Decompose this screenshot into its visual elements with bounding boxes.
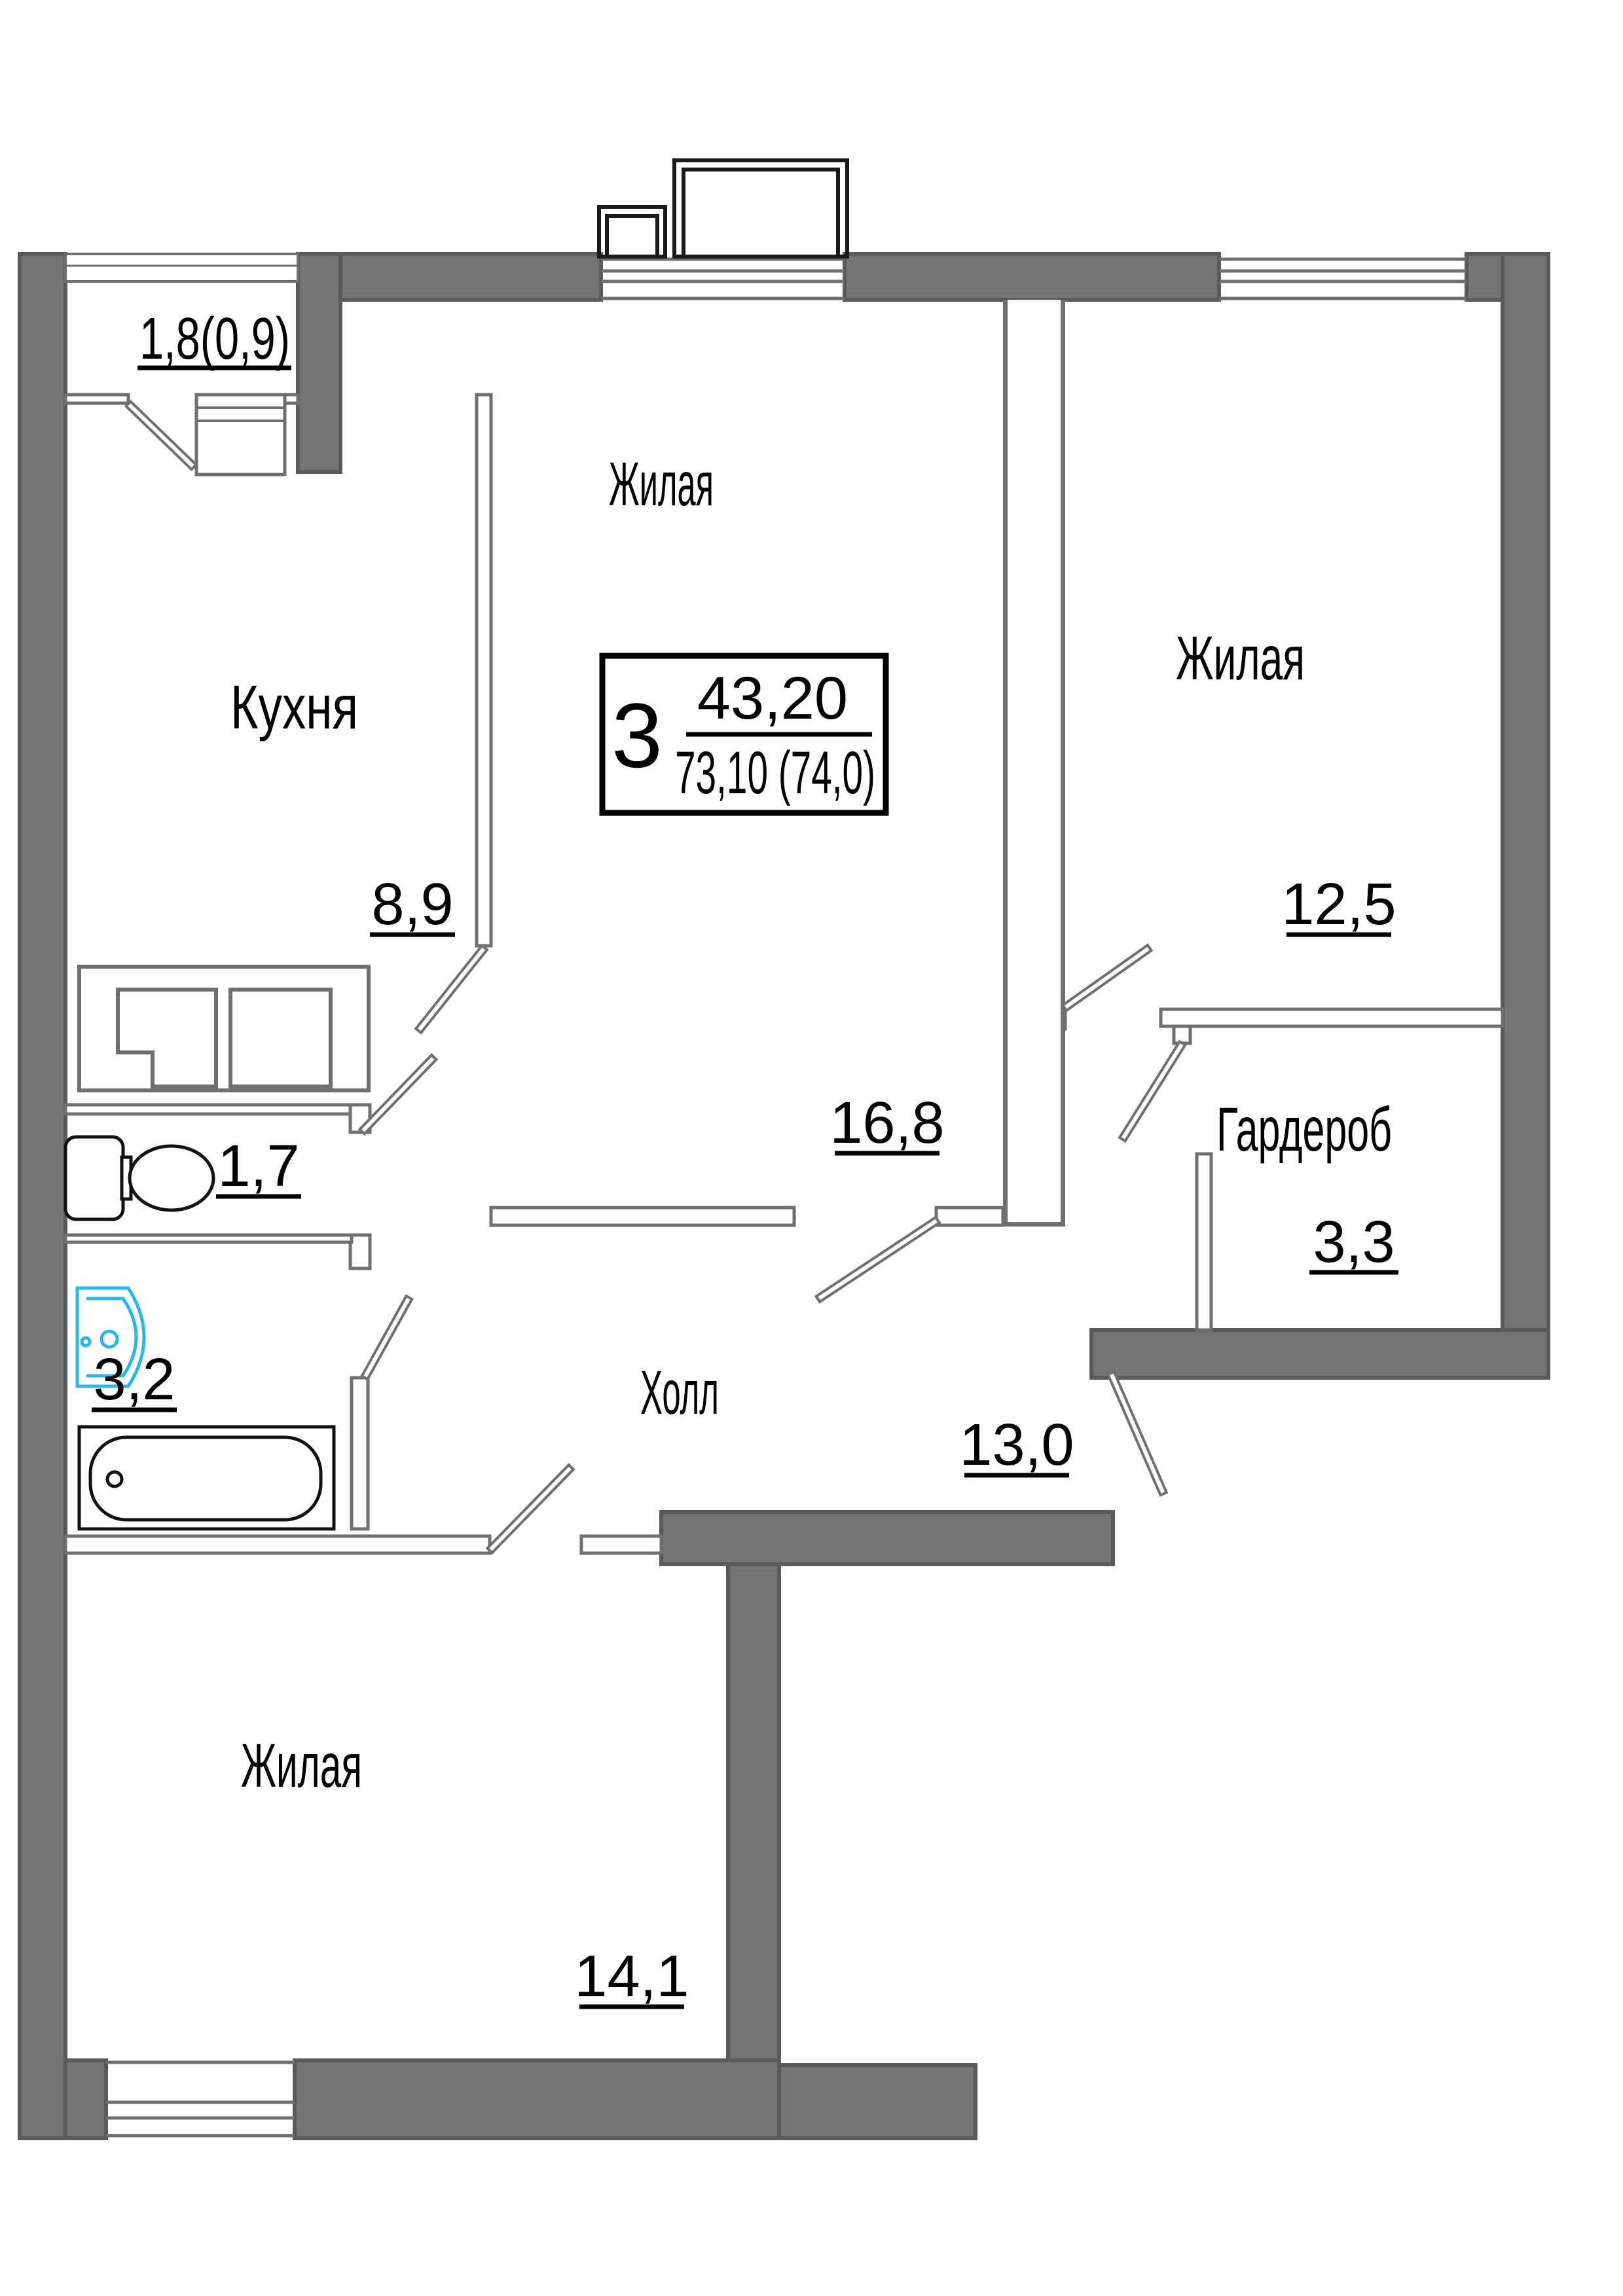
- shaft-cavity: [1008, 300, 1061, 1222]
- window-icon: [65, 254, 298, 281]
- room-label-living-top: Жилая: [609, 450, 714, 519]
- door-swing-icon: [362, 1296, 412, 1379]
- wardrobe-area: 3,3: [1313, 1210, 1395, 1275]
- total-area: 73,10 (74,0): [675, 740, 875, 806]
- balcony-glazing: [65, 254, 298, 281]
- door-swing-icon: [126, 401, 196, 469]
- jamb: [936, 1208, 1003, 1225]
- wall-left: [20, 254, 65, 2138]
- wall-bath-right: [352, 1378, 368, 1529]
- room-label-living-right: Жилая: [1176, 624, 1305, 693]
- balcony-area: 1,8(0,9): [139, 306, 290, 372]
- shaft-wall-right: [1061, 300, 1065, 1226]
- toilet-icon: [65, 1137, 213, 1219]
- window-top-right: [1219, 259, 1467, 298]
- window-bottom: [106, 2062, 295, 2136]
- door-swing-icon: [1063, 945, 1152, 1011]
- floor-plan-drawing: 1,8(0,9) Кухня 8,9 Жилая 16,8 Жилая 12,5…: [0, 0, 1623, 2296]
- bathroom-area: 3,2: [93, 1347, 175, 1412]
- living-right-area: 12,5: [1281, 872, 1396, 937]
- shaft-wall-left: [1003, 300, 1008, 1226]
- kitchen-area: 8,9: [371, 872, 453, 937]
- wall-balcony-bottom-a: [65, 395, 128, 403]
- room-label-living-bottom: Жилая: [241, 1731, 362, 1801]
- wall-midroom-bottom: [491, 1208, 794, 1225]
- wall-bottomroom-top-a: [65, 1536, 490, 1553]
- window-top-middle: [601, 259, 845, 298]
- living-bottom-area: 14,1: [574, 1944, 689, 2009]
- balcony-outline-boxes: [599, 160, 847, 257]
- wall-bottom-left-stub: [65, 2060, 106, 2138]
- wall-wc-bath-divider: [65, 1235, 352, 1242]
- door-swing-icon: [816, 1217, 939, 1302]
- shaft: [1003, 300, 1065, 1227]
- wall-balcony-pillar: [298, 254, 340, 472]
- rooms-count: 3: [611, 684, 663, 787]
- window-box-small-inner: [607, 216, 657, 257]
- bathtub-icon: [79, 1427, 334, 1529]
- wall-bottom-extension: [779, 2065, 976, 2138]
- wall-top-corner: [1467, 254, 1506, 300]
- unit-info-box: 3 43,20 73,10 (74,0): [602, 656, 886, 813]
- wall-wardrobe-bottom: [1091, 1330, 1548, 1378]
- wall-wardrobe-left: [1197, 1154, 1211, 1330]
- wall-room-right: [728, 1564, 779, 2138]
- living-top-area: 16,8: [830, 1090, 944, 1156]
- door-swing-icon: [1108, 1372, 1166, 1495]
- wall-top-a: [340, 254, 601, 300]
- wc-area: 1,7: [217, 1134, 299, 1199]
- wall-bottom: [295, 2060, 779, 2138]
- wall-rightroom-bottom: [1161, 1009, 1503, 1026]
- kitchen-counter-icon: [79, 967, 369, 1090]
- wall-bottomroom-top-b: [581, 1536, 661, 1553]
- jamb: [1174, 1026, 1190, 1043]
- room-label-hall: Холл: [640, 1358, 719, 1427]
- room-label-wardrobe: Гардероб: [1216, 1095, 1392, 1164]
- window-box-large-outer: [674, 160, 847, 257]
- window-box-large-inner: [684, 170, 838, 257]
- hall-area: 13,0: [959, 1412, 1074, 1478]
- wall-kitchen-right: [477, 395, 491, 946]
- door-swing-icon: [359, 1055, 436, 1134]
- floor-plan-page: 1,8(0,9) Кухня 8,9 Жилая 16,8 Жилая 12,5…: [0, 0, 1623, 2296]
- shaft-cap: [1003, 1222, 1065, 1227]
- living-area-total: 43,20: [697, 665, 848, 732]
- door-swing-icon: [1120, 1041, 1185, 1141]
- wall-kitchen-bottom: [65, 1105, 370, 1114]
- room-label-kitchen: Кухня: [230, 673, 358, 742]
- wall-hall-bottom: [661, 1512, 1113, 1564]
- door-swing-icon: [416, 946, 487, 1033]
- wall-right: [1503, 254, 1548, 1378]
- door-swing-icon: [487, 1465, 573, 1552]
- balcony-partition: [65, 395, 298, 475]
- wall-top-b: [845, 254, 1219, 300]
